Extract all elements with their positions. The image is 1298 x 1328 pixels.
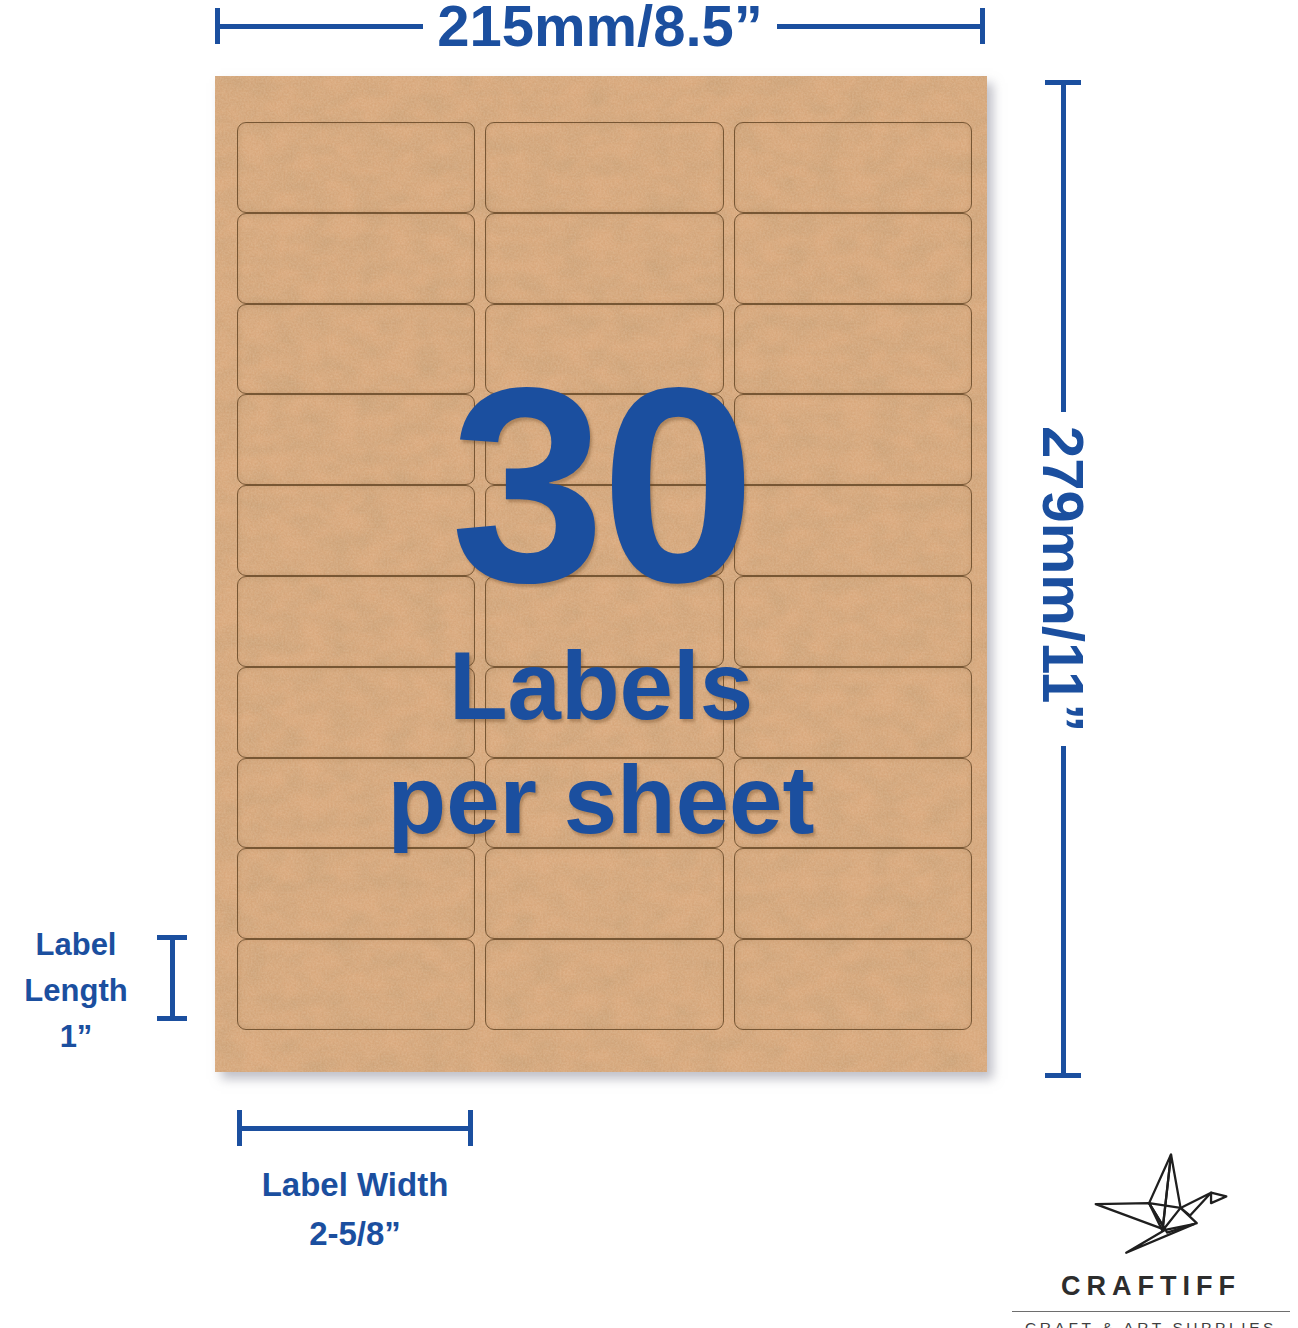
sheet-height-value: 279mm/11” (1034, 412, 1092, 746)
label-length-annotation: Label Length 1” (0, 922, 152, 1060)
label-cell (485, 848, 723, 939)
labels-caption-line1: Labels (215, 638, 987, 734)
brand-name: CRAFTIFF (1012, 1271, 1290, 1302)
kraft-label-sheet: 30 Labels per sheet (215, 76, 987, 1072)
sheet-height-dimension: 279mm/11” (1040, 80, 1086, 1078)
label-length-line1: Label (0, 922, 152, 968)
dimension-line (1061, 746, 1066, 1073)
dimension-end-cap (1045, 1073, 1081, 1078)
sheet-overlay-text: 30 Labels per sheet (215, 346, 987, 848)
dimension-line (777, 24, 980, 29)
dimension-end-cap (468, 1110, 473, 1146)
dimension-line (242, 1126, 468, 1131)
dimension-line (170, 940, 175, 1016)
product-image: 215mm/8.5” 279mm/11” (0, 0, 1298, 1328)
brand-logo: CRAFTIFF CRAFT & ART SUPPLIES (1012, 1145, 1290, 1328)
dimension-end-cap (157, 1016, 187, 1021)
label-length-dimension (157, 935, 187, 1021)
origami-crane-icon (1071, 1145, 1231, 1267)
brand-tagline: CRAFT & ART SUPPLIES (1012, 1319, 1290, 1328)
label-cell (237, 848, 475, 939)
label-cell (734, 213, 972, 304)
sheet-width-dimension: 215mm/8.5” (215, 4, 985, 48)
dimension-line (220, 24, 423, 29)
sheet-width-value: 215mm/8.5” (423, 0, 777, 55)
label-cell (237, 213, 475, 304)
label-cell (734, 122, 972, 213)
label-length-line2: Length (0, 968, 152, 1014)
dimension-end-cap (980, 8, 985, 44)
label-cell (734, 848, 972, 939)
label-width-value: 2-5/8” (195, 1209, 515, 1258)
label-width-annotation: Label Width 2-5/8” (195, 1160, 515, 1258)
label-width-line1: Label Width (195, 1160, 515, 1209)
label-cell (485, 939, 723, 1030)
label-length-value: 1” (0, 1014, 152, 1060)
label-cell (237, 122, 475, 213)
label-cell (734, 939, 972, 1030)
dimension-line (1061, 85, 1066, 412)
labels-caption-line2: per sheet (215, 752, 987, 848)
label-cell (485, 213, 723, 304)
logo-divider (1012, 1311, 1290, 1312)
label-width-dimension (237, 1110, 473, 1146)
label-cell (485, 122, 723, 213)
labels-count: 30 (215, 346, 987, 624)
label-cell (237, 939, 475, 1030)
